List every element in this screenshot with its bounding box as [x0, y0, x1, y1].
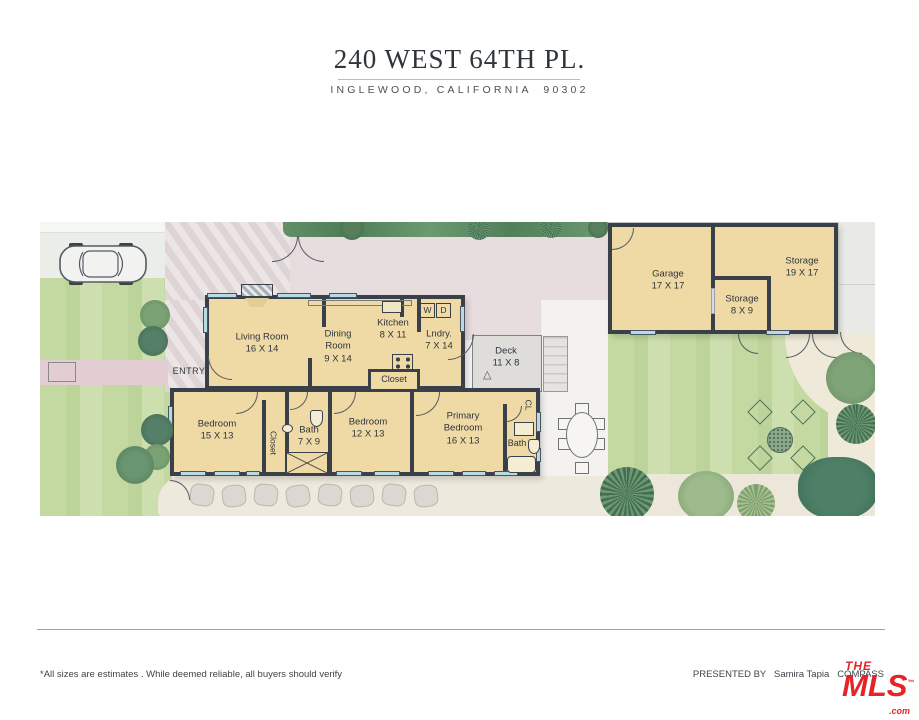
- patio-chair: [575, 462, 589, 474]
- window: [536, 412, 541, 432]
- bush: [141, 414, 173, 446]
- footer-divider: [37, 629, 885, 630]
- room-label-dining: Dining Room9 X 14: [317, 328, 359, 365]
- room-label-storage-large: Storage19 X 17: [774, 256, 830, 281]
- room-label-storage-small: Storage8 X 9: [715, 294, 769, 319]
- stepping-stone: [253, 483, 279, 507]
- window: [203, 307, 208, 333]
- room-label-living: Living Room16 X 14: [220, 332, 304, 357]
- firepit: [767, 427, 793, 453]
- car-icon: [56, 240, 150, 288]
- palm-tree: [737, 484, 775, 516]
- storage-small-top-wall: [715, 276, 767, 280]
- stepping-stone: [349, 484, 375, 508]
- disclaimer: *All sizes are estimates . While deemed …: [40, 634, 342, 720]
- disclaimer-line1: *All sizes are estimates . While deemed …: [40, 667, 342, 684]
- bush: [798, 457, 875, 516]
- bathtub: [286, 452, 328, 474]
- wall: [410, 392, 414, 476]
- mls-logo-com: .com: [889, 707, 910, 716]
- kitchen-sink: [382, 301, 402, 313]
- washer-box: W: [420, 303, 435, 318]
- entry-porch: [165, 300, 205, 392]
- stepping-stone: [221, 484, 248, 509]
- floor-plan-flyer: 240 WEST 64TH PL. INGLEWOOD, CALIFORNIA …: [0, 0, 919, 720]
- bush: [138, 326, 168, 356]
- bush: [116, 446, 154, 484]
- walk-joint: [839, 284, 875, 285]
- room-label-garage: Garage17 X 17: [638, 269, 698, 294]
- page-title: 240 WEST 64TH PL.: [0, 44, 919, 75]
- window: [207, 293, 237, 298]
- window: [329, 293, 357, 298]
- stepping-stone: [189, 482, 216, 507]
- mls-logo-mls: MLS™: [842, 670, 912, 701]
- stepping-stone: [317, 483, 344, 508]
- stove: [392, 354, 413, 370]
- washer-label: W: [423, 305, 431, 315]
- trademark-symbol: ™: [907, 680, 914, 687]
- room-label-kitchen: Kitchen8 X 11: [365, 318, 421, 343]
- side-walk-right: [838, 222, 875, 334]
- page-subtitle: INGLEWOOD, CALIFORNIA 90302: [0, 84, 919, 96]
- deck-steps: [543, 336, 568, 392]
- room-label-primary-bath: Bath: [502, 438, 532, 450]
- disclaimer-line2: square footage. www.floorplandrawings.co…: [40, 717, 342, 720]
- room-label-hall-closet: Closet: [369, 374, 419, 386]
- bush: [678, 471, 734, 516]
- bush: [826, 352, 875, 404]
- room-label-bath1: Bath7 X 9: [291, 425, 327, 450]
- room-label-laundry: Lndry.7 X 14: [417, 329, 461, 354]
- dryer-box: D: [436, 303, 451, 318]
- bathtub: [507, 456, 536, 473]
- room-label-bedroom1: Bedroom15 X 13: [187, 419, 247, 444]
- primary-sink: [514, 422, 534, 436]
- mls-logo: THE MLS™ .com: [842, 660, 912, 716]
- room-label-closet1: Closet: [267, 431, 278, 455]
- window: [246, 471, 260, 476]
- window: [336, 471, 362, 476]
- dryer-label: D: [440, 305, 446, 315]
- window: [180, 471, 206, 476]
- stepping-stone: [381, 482, 408, 507]
- sidewalk: [40, 222, 165, 233]
- walkway-mat: [48, 362, 76, 382]
- wall: [308, 358, 312, 388]
- patio-table: [566, 412, 598, 458]
- room-label-deck: Deck11 X 8: [484, 346, 528, 371]
- site-plan: W D: [40, 222, 875, 516]
- window: [374, 471, 400, 476]
- stepping-stone: [413, 484, 440, 509]
- window: [277, 293, 311, 298]
- wall: [262, 400, 266, 476]
- walkway: [40, 360, 168, 385]
- contact-line: PH (818) 642-9622 E Samira@samira.net: [693, 717, 884, 720]
- window: [428, 471, 454, 476]
- palm-tree: [836, 404, 875, 444]
- fireplace: [241, 284, 273, 297]
- palm-tree: [600, 467, 654, 516]
- window: [214, 471, 240, 476]
- entry-label: ENTRY: [167, 366, 211, 378]
- window: [462, 471, 486, 476]
- window: [630, 330, 656, 335]
- wall: [328, 392, 332, 476]
- room-label-primary-bedroom: Primary Bedroom16 X 13: [432, 410, 494, 447]
- room-label-bedroom2: Bedroom12 X 13: [338, 417, 398, 442]
- room-label-primary-closet: CL: [522, 400, 533, 411]
- title-divider: [338, 79, 580, 80]
- rear-patio-wedge: [465, 300, 540, 340]
